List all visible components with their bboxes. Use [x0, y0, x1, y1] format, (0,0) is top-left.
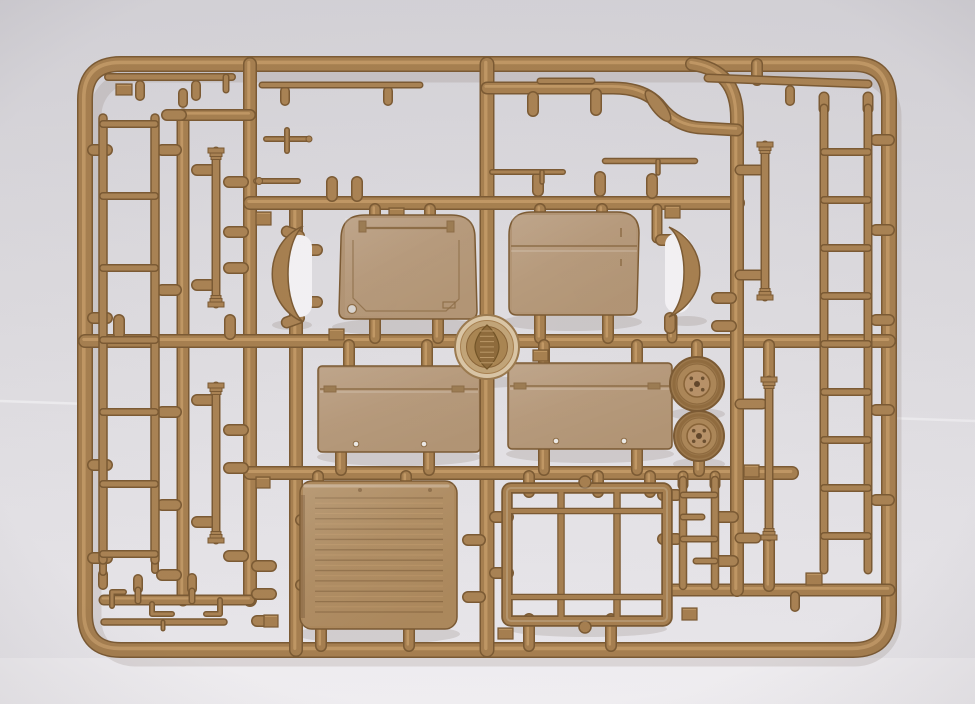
- sprue-parts-group: [0, 0, 975, 704]
- vignette: [0, 0, 975, 704]
- photo-of-model-kit-sprue: [0, 0, 975, 704]
- sprue-photo-canvas: [0, 0, 975, 704]
